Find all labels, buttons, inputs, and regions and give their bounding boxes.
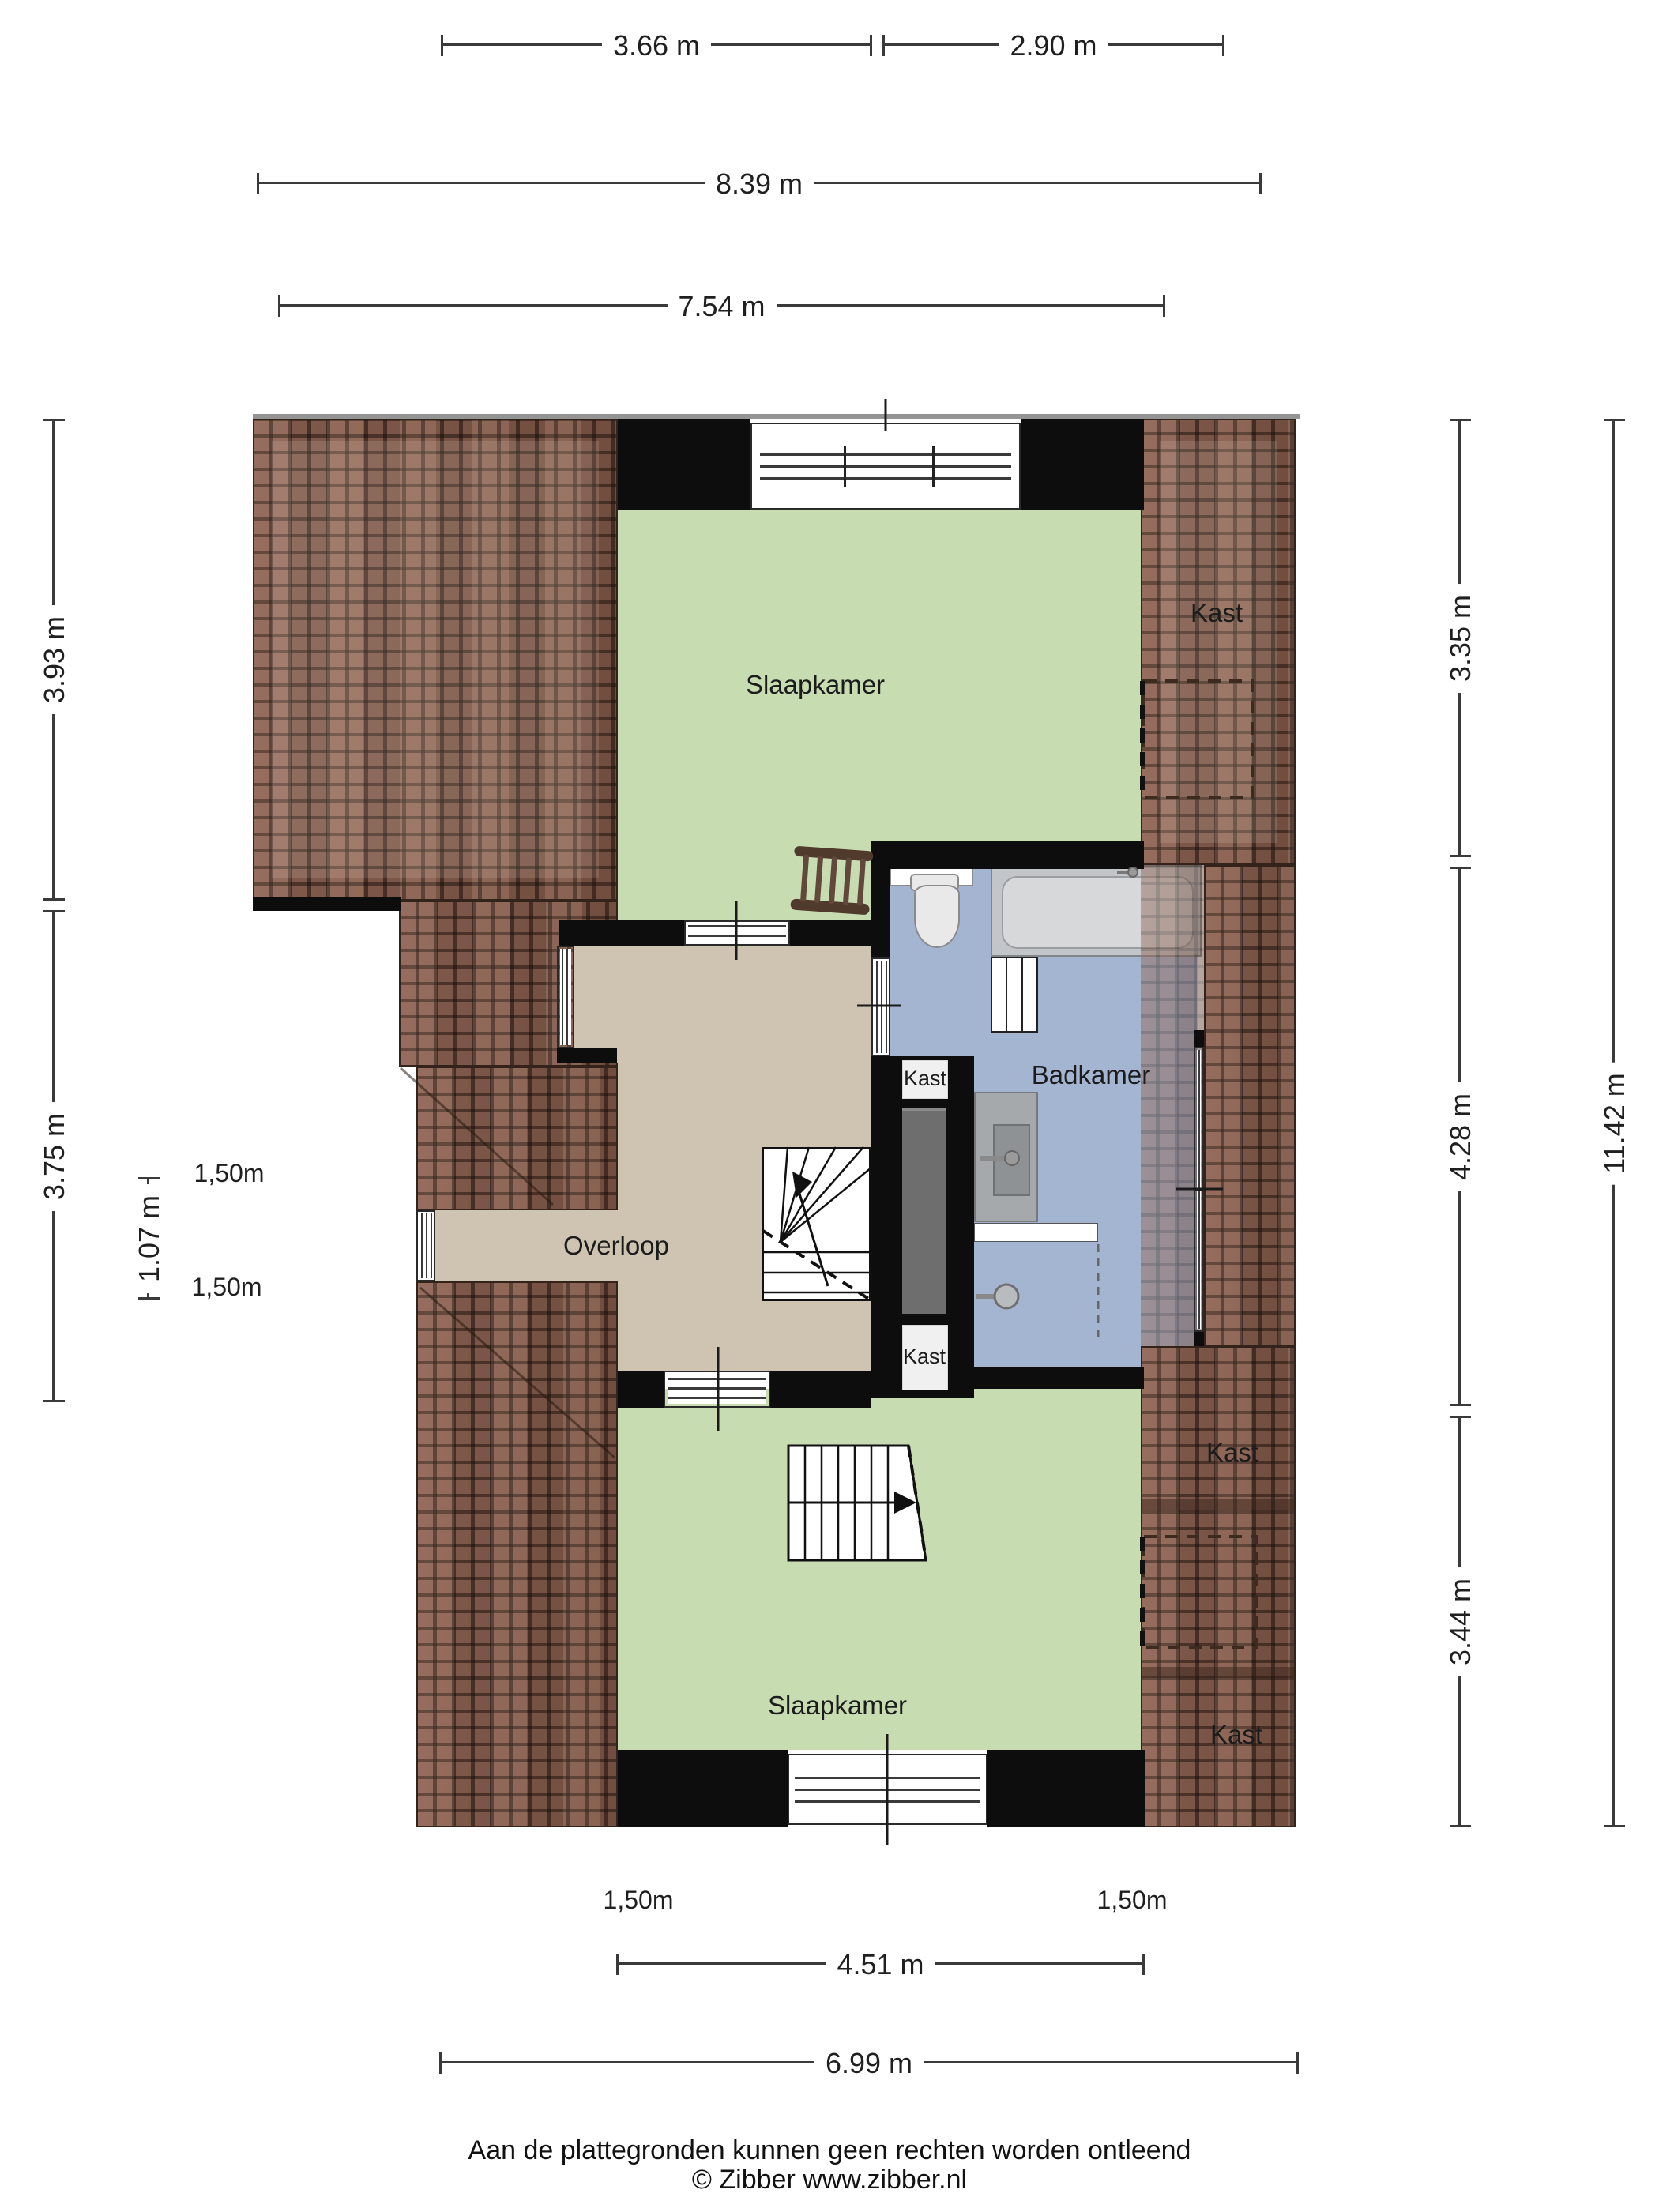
headroom-label-bottom-1: 1,50m <box>591 1886 686 1915</box>
dimension-label: 2.90 m <box>999 29 1108 62</box>
roof-area-right-mid <box>1204 865 1296 1346</box>
wall-top-left <box>618 419 750 510</box>
window-bedroomtop-landing <box>684 920 790 946</box>
dimension-label: 3.93 m <box>38 605 71 714</box>
stair-railing <box>790 841 874 920</box>
room-label-landing: Overloop <box>537 1231 695 1261</box>
wall-bedroomtop-south-left <box>559 920 684 946</box>
dimension-label: 3.66 m <box>602 29 711 62</box>
dimension-left-3-75: 3.75 m <box>52 910 55 1402</box>
wall-bathwindow-top <box>1194 1030 1204 1047</box>
dimension-bottom-4-51: 4.51 m <box>616 1962 1145 1965</box>
wall-bathroom-west <box>871 869 890 957</box>
room-label-closet-bottomright-2: Kast <box>1181 1720 1292 1750</box>
roof-area-top-left <box>253 419 618 901</box>
toilet-bowl <box>914 885 960 948</box>
dimension-right-3-44: 3.44 m <box>1458 1416 1461 1827</box>
wall-bottom-left <box>618 1750 788 1827</box>
room-label-bedroom-bottom: Slaapkamer <box>719 1691 956 1721</box>
room-label-closet-bottomright-1: Kast <box>1177 1438 1288 1468</box>
headroom-label-bottom-2: 1,50m <box>1085 1886 1179 1915</box>
room-label-bedroom-top: Slaapkamer <box>697 670 934 700</box>
dimension-left-1-07: 1.07 m <box>147 1177 149 1300</box>
dimension-top-3-66: 3.66 m <box>441 43 872 46</box>
dimension-label: 3.44 m <box>1444 1567 1477 1676</box>
closet-partition-line-2 <box>1141 1667 1296 1678</box>
staircase-upper <box>762 1147 871 1301</box>
footer-disclaimer: Aan de plattegronden kunnen geen rechten… <box>0 2135 1659 2166</box>
dimension-top-2-90: 2.90 m <box>882 43 1224 46</box>
bath-step-unit <box>991 957 1038 1033</box>
headroom-label-left-1: 1,50m <box>182 1159 276 1188</box>
roof-area-right-bottom <box>1141 1346 1296 1827</box>
dimension-top-8-39: 8.39 m <box>257 182 1262 184</box>
dimension-right-3-35: 3.35 m <box>1458 419 1461 857</box>
roof-step-edge <box>253 897 401 911</box>
dimension-label: 1.07 m <box>133 1183 166 1292</box>
footer-copyright: © Zibber www.zibber.nl <box>0 2165 1659 2195</box>
wall-landing-south-right <box>770 1371 871 1408</box>
dimension-top-7-54: 7.54 m <box>278 304 1165 307</box>
room-label-closet-shaft-lower: Kast <box>885 1345 964 1369</box>
room-label-closet-topright: Kast <box>1161 598 1272 628</box>
roof-area-mid-left-lower <box>416 1066 618 1210</box>
door-bathroom <box>871 957 890 1056</box>
floorplan-page: Slaapkamer Slaapkamer Overloop Badkamer … <box>0 0 1659 2212</box>
dimension-label: 4.51 m <box>826 1948 935 1981</box>
wall-bottom-right <box>987 1750 1145 1827</box>
vanity-basin <box>993 1124 1030 1196</box>
dimension-label: 3.35 m <box>1444 583 1477 692</box>
shower-screen-shelf <box>974 1223 1098 1242</box>
roof-sheen <box>1160 441 1277 843</box>
wall-bathroom-south <box>974 1367 1144 1389</box>
wall-bathroom-north <box>871 841 1144 869</box>
window-glazing <box>760 453 1011 480</box>
window-bedroombottom-dormer <box>788 1754 987 1825</box>
window-bedroomtop-dormer <box>750 423 1021 510</box>
roof-area-right-top <box>1141 419 1296 865</box>
wall-top-right <box>1021 419 1144 510</box>
headroom-label-left-2: 1,50m <box>179 1273 274 1302</box>
wall-landing-west-stub <box>557 1048 617 1063</box>
window-landing-west-alcove <box>416 1210 435 1281</box>
dimension-right-11-42: 11.42 m <box>1612 419 1615 1827</box>
wall-landing-south-left <box>618 1371 664 1408</box>
window-bathroom-east <box>1194 1047 1204 1332</box>
room-label-bathroom: Badkamer <box>996 1060 1186 1090</box>
dimension-label: 11.42 m <box>1598 1062 1631 1184</box>
roof-area-bottom-left <box>416 1281 618 1827</box>
wall-bedroomtop-south-right <box>790 920 871 946</box>
dimension-label: 8.39 m <box>705 167 814 201</box>
dimension-label: 7.54 m <box>667 290 776 323</box>
room-label-closet-shaft-upper: Kast <box>886 1066 965 1091</box>
closet-shaft <box>902 1108 946 1314</box>
roof-sheen <box>272 441 599 878</box>
vanity-cabinet <box>974 1092 1038 1222</box>
dimension-right-4-28: 4.28 m <box>1458 867 1461 1406</box>
window-landing-west-upper <box>557 946 574 1048</box>
dimension-left-3-93: 3.93 m <box>52 419 55 901</box>
dimension-label: 4.28 m <box>1444 1082 1477 1191</box>
wall-bathwindow-bottom <box>1194 1332 1204 1346</box>
landing-floor-upper <box>574 946 871 1063</box>
door-landing-bedroom <box>664 1371 770 1408</box>
dimension-bottom-6-99: 6.99 m <box>439 2061 1299 2063</box>
dimension-label: 3.75 m <box>38 1101 71 1210</box>
closet-partition-line-1 <box>1141 1499 1296 1510</box>
window-glazing <box>795 1776 980 1803</box>
dimension-label: 6.99 m <box>814 2047 924 2080</box>
